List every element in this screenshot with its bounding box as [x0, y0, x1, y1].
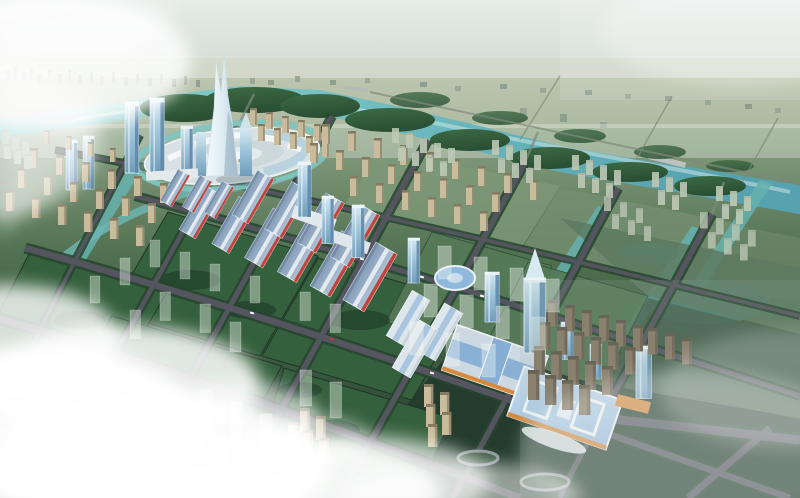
rendering-canvas	[0, 0, 800, 498]
cbd-tower	[150, 98, 164, 173]
aerial-city-rendering	[0, 0, 800, 498]
cbd-tower	[181, 126, 193, 174]
companion-tower	[240, 128, 252, 176]
northeast-haze	[560, 0, 800, 100]
